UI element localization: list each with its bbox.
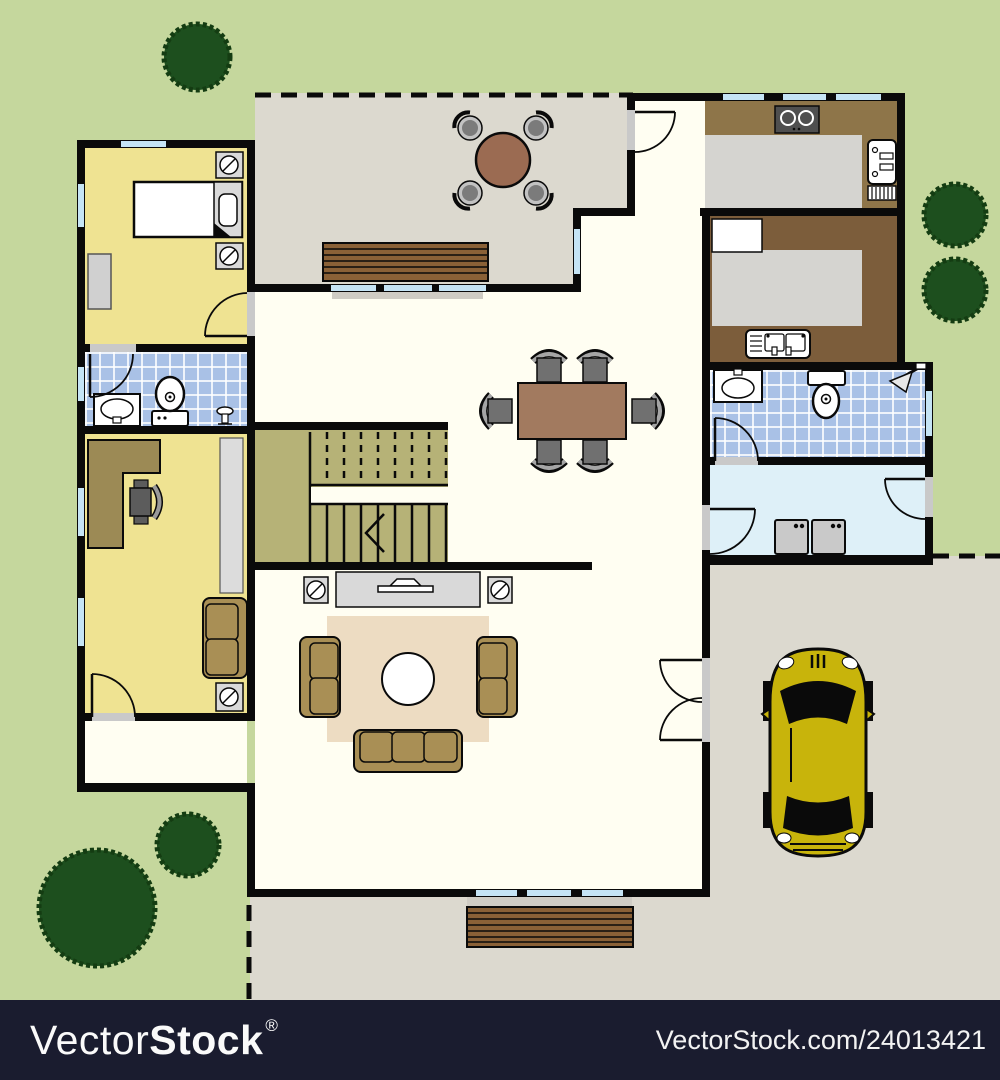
entry-window-3 xyxy=(581,889,624,897)
tree-icon xyxy=(157,814,219,876)
kitchen-window-2 xyxy=(782,93,827,101)
wall-bathroom-south-b xyxy=(758,457,933,465)
wall-leftwing-south xyxy=(77,783,255,792)
ensuite-window xyxy=(77,366,85,402)
office-window-1 xyxy=(77,487,85,537)
laundry-floor xyxy=(710,465,925,555)
kitchen-floor xyxy=(705,135,862,208)
wall-stairs-south xyxy=(247,562,592,570)
patio-window-1 xyxy=(330,284,377,292)
bedroom-north-window xyxy=(120,140,167,148)
ensuite-door-threshold xyxy=(90,344,136,352)
wall-patio-step xyxy=(573,208,635,216)
staircase-floor xyxy=(255,430,448,562)
office-window-2 xyxy=(77,597,85,647)
brand-bold: Stock xyxy=(149,1017,263,1064)
hall-corner-floor xyxy=(581,216,635,292)
kitchen-window-1 xyxy=(722,93,765,101)
wall-office-south-a xyxy=(77,713,92,721)
tree-icon xyxy=(39,850,155,966)
office-door-threshold xyxy=(92,713,135,721)
bathroom-door-threshold xyxy=(715,457,758,465)
wall-stairs-north xyxy=(247,422,448,430)
wall-leftwing-east-b xyxy=(247,336,255,718)
wall-kitchen-divider xyxy=(700,208,905,216)
bedroom-floor xyxy=(85,148,247,344)
wall-laundry-south xyxy=(702,555,933,565)
wall-bathroom-south-a xyxy=(702,457,715,465)
patio-window-3 xyxy=(438,284,487,292)
tree-icon xyxy=(924,259,986,321)
tree-icon xyxy=(924,184,986,246)
registered-mark: ® xyxy=(265,1016,278,1036)
wall-bath-office xyxy=(77,426,255,434)
wall-bathroom-north xyxy=(702,362,933,370)
tree-icon xyxy=(164,24,230,90)
bedroom-west-window xyxy=(77,183,85,228)
wall-kitchen-bath-west xyxy=(702,208,710,457)
vectorstock-logo: VectorStock® xyxy=(30,1000,276,1080)
floorplan-canvas: VectorStock® VectorStock.com/24013421 xyxy=(0,0,1000,1080)
wall-patio-east-b xyxy=(627,150,635,216)
wall-leftwing-east-a xyxy=(247,140,255,292)
ensuite-bathroom-floor xyxy=(85,352,247,426)
back-hall-floor xyxy=(85,721,247,783)
image-credit-url: VectorStock.com/24013421 xyxy=(656,1000,986,1080)
second-kitchen-floor xyxy=(712,250,862,326)
entry-step xyxy=(467,897,632,907)
office-floor xyxy=(85,434,247,713)
wall-east-a xyxy=(702,565,710,658)
patio-door-threshold xyxy=(627,110,635,150)
bathroom-window xyxy=(925,390,933,437)
laundry-west-door-threshold xyxy=(702,505,710,550)
patio-step xyxy=(332,292,483,299)
wall-laundry-east-a xyxy=(925,465,933,477)
brand-light: Vector xyxy=(30,1017,149,1064)
wall-office-south-b xyxy=(135,713,255,721)
laundry-east-door-threshold xyxy=(925,477,933,517)
front-walkway xyxy=(250,897,710,1000)
bedroom-door-threshold xyxy=(247,292,255,336)
entry-window-1 xyxy=(475,889,518,897)
patio-window-2 xyxy=(383,284,433,292)
wall-bed-bath-b xyxy=(136,344,255,352)
french-door-threshold xyxy=(702,658,710,742)
watermark-bar: VectorStock® VectorStock.com/24013421 xyxy=(0,1000,1000,1080)
wall-southwest-step xyxy=(247,783,255,897)
wall-west xyxy=(77,140,85,792)
wall-laundry-west-a xyxy=(702,465,710,505)
wall-east-b xyxy=(702,742,710,897)
driveway xyxy=(710,556,1000,1000)
bathroom-floor xyxy=(710,370,925,457)
hall-patio-window xyxy=(573,228,581,275)
main-hall-floor xyxy=(255,292,702,889)
wall-bed-bath-a xyxy=(77,344,90,352)
wall-kitchen-east xyxy=(897,93,905,370)
corridor-floor xyxy=(635,100,707,292)
kitchen-window-3 xyxy=(835,93,882,101)
entry-window-2 xyxy=(526,889,572,897)
